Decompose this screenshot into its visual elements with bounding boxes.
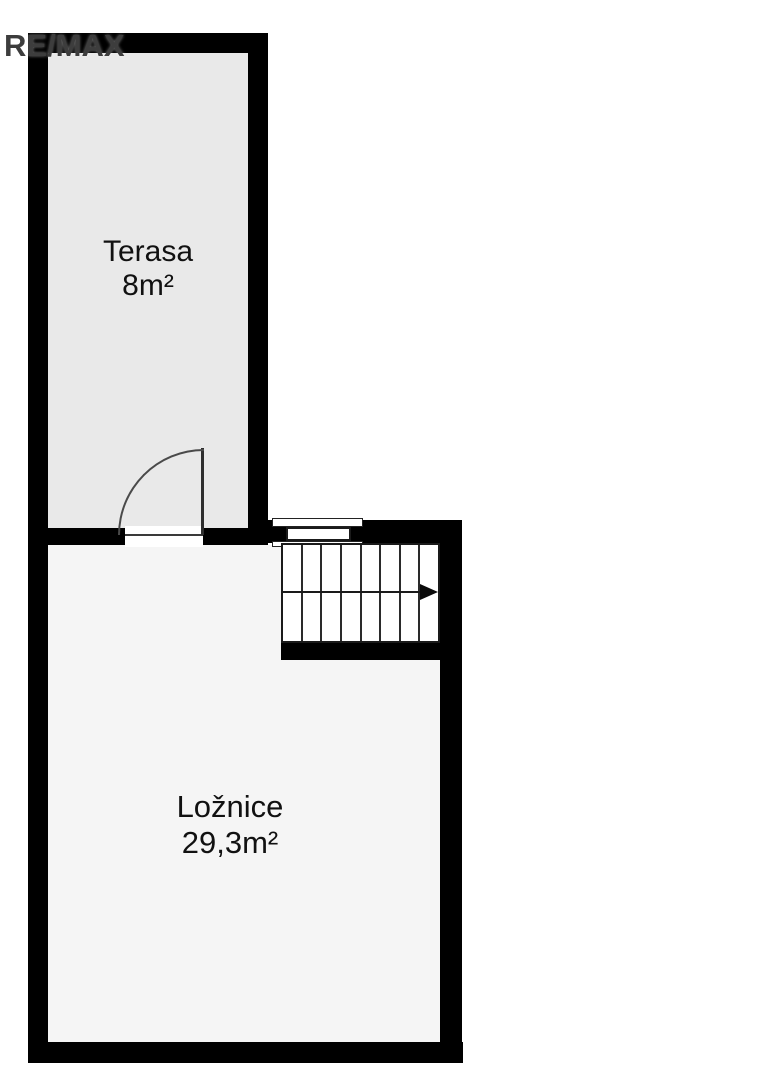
stair-tread xyxy=(342,545,362,641)
wall-divider-right-segment xyxy=(203,528,268,545)
terasa-label: Terasa 8m² xyxy=(48,235,248,303)
wall-right xyxy=(440,520,462,1063)
loznice-area: 29,3m² xyxy=(100,825,360,861)
stair-tread xyxy=(381,545,401,641)
loznice-name: Ložnice xyxy=(100,789,360,825)
wall-left xyxy=(28,33,48,1063)
loznice-label: Ložnice 29,3m² xyxy=(100,789,360,861)
wall-bottom xyxy=(28,1042,463,1063)
window-outer-strip-icon xyxy=(272,518,363,527)
remax-logo: RE/MAX xyxy=(4,28,125,64)
floor-plan: Terasa 8m² Ložnice 29,3m² RE/MAX xyxy=(0,0,762,1080)
terasa-area: 8m² xyxy=(48,269,248,303)
wall-under-stairs xyxy=(281,643,462,660)
stair-tread xyxy=(303,545,323,641)
loznice-room-floor-upper xyxy=(48,545,281,660)
window-sash-icon xyxy=(286,527,351,541)
stair-tread xyxy=(283,545,303,641)
wall-terasa-right xyxy=(248,33,268,545)
stairs-direction-line xyxy=(281,591,424,593)
stairs-direction-arrow-icon xyxy=(420,584,438,600)
wall-divider-left-segment xyxy=(28,528,125,545)
stair-tread xyxy=(362,545,382,641)
staircase xyxy=(281,543,440,643)
stair-tread xyxy=(322,545,342,641)
terasa-name: Terasa xyxy=(48,235,248,269)
stair-tread xyxy=(401,545,421,641)
